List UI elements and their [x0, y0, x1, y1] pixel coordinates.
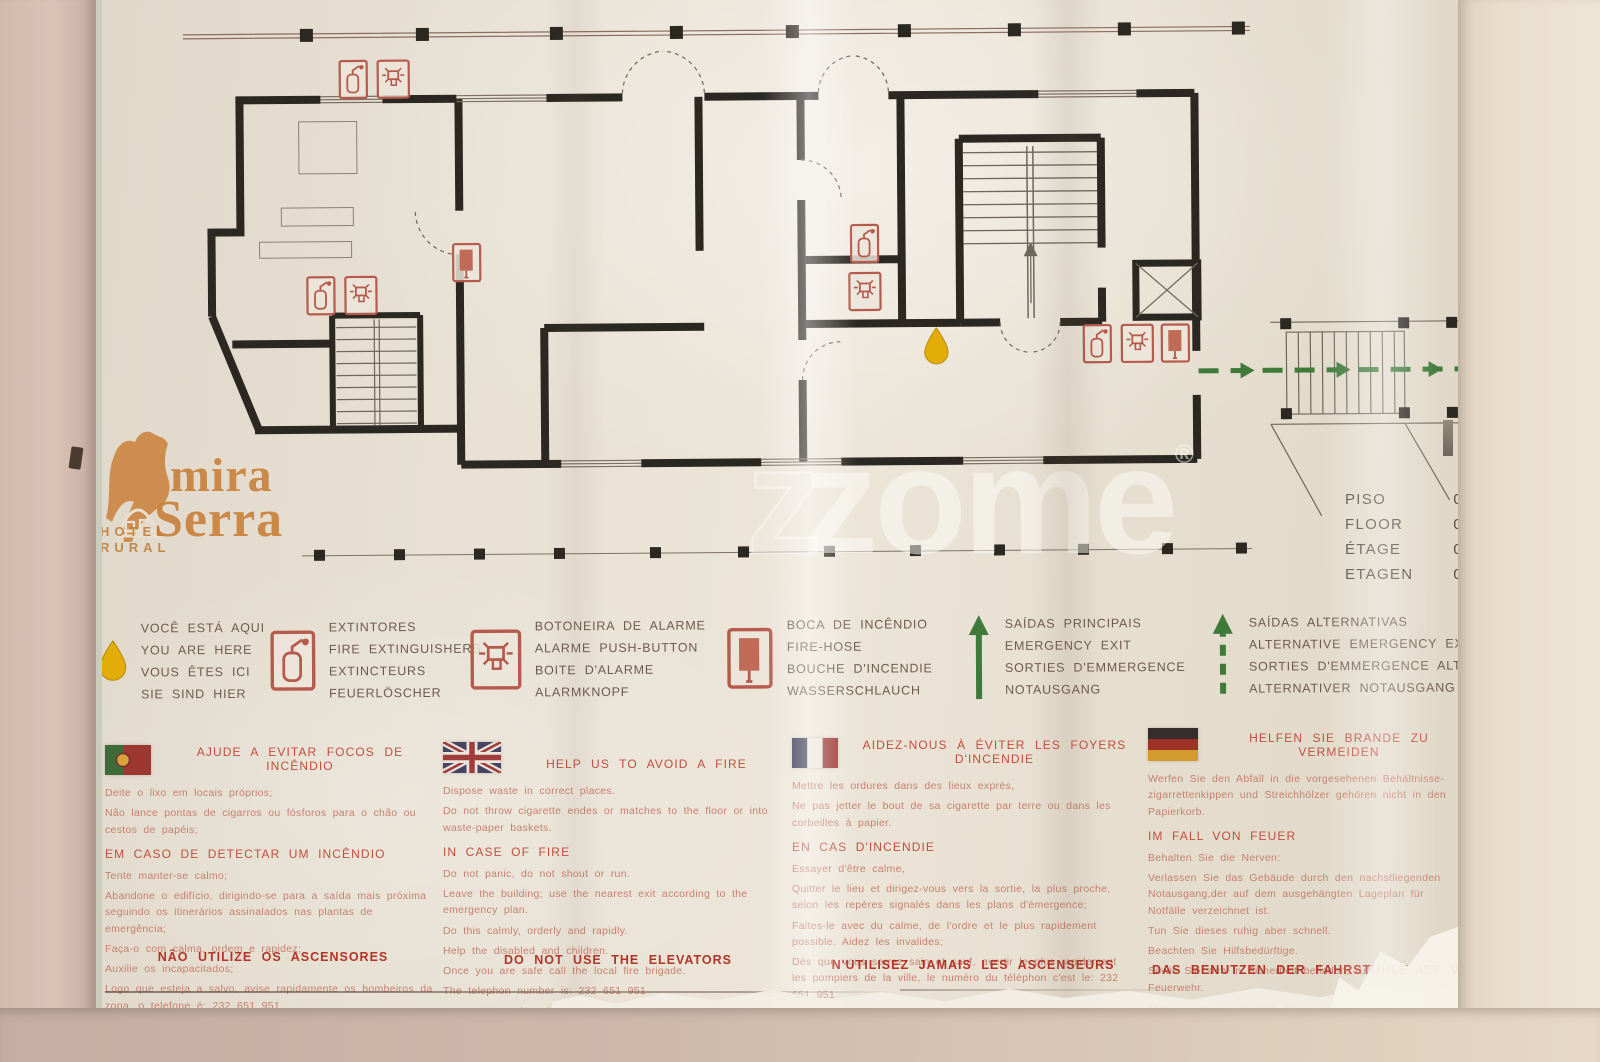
- elevator-box: [1136, 263, 1198, 317]
- fire-hose-icon: [726, 627, 774, 689]
- fire-hose-icon: [1162, 324, 1189, 361]
- hotel-logo: mira Serra HOTEL RURAL: [92, 428, 322, 568]
- paragraph: Faites-le avec du calme, de l'ordre et l…: [792, 918, 1137, 951]
- paragraph: Do this calmly, orderly and rapidly.: [443, 923, 778, 939]
- info-column-english: HELP US TO AVOID A FIRE Dispose waste in…: [443, 742, 778, 1040]
- paragraph: Leave the building; use the nearest exit…: [443, 886, 778, 919]
- paragraph: Do not panic, do not shout or run.: [443, 866, 778, 882]
- paragraph: Dispose waste in correct places.: [443, 783, 778, 799]
- zome-watermark: zzome®: [575, 425, 1365, 577]
- paragraph: Quitter le lieu et dirigez-vous vers la …: [792, 881, 1137, 914]
- wall-left: [0, 0, 102, 1062]
- fire-extinguisher-icon: [270, 630, 316, 692]
- paragraph: Abandone o edifício, dirigindo-se para a…: [105, 888, 435, 937]
- alarm-push-button-icon: [849, 273, 880, 310]
- column-subtitle: IN CASE OF FIRE: [443, 845, 778, 859]
- escape-route-arrows: [1199, 361, 1459, 379]
- logo-word-2: Serra: [154, 490, 283, 549]
- logo-sub-2: RURAL: [100, 540, 171, 555]
- logo-sub-1: HOTEL: [100, 524, 169, 539]
- fire-extinguisher-icon: [1084, 325, 1111, 362]
- footer-en: DO NOT USE THE ELEVATORS: [468, 953, 768, 967]
- column-subtitle: EN CAS D'INCENDIE: [792, 840, 1137, 854]
- paragraph: Essayer d'être calme,: [792, 861, 1137, 877]
- footer-fr: N'UTILISEZ JAMAIS LES ASCENSEURS: [808, 958, 1138, 972]
- paragraph: Do not throw cigarette endes or matches …: [443, 803, 778, 836]
- paragraph: Tente manter-se calmo;: [105, 868, 435, 884]
- fire-extinguisher-icon: [851, 225, 878, 262]
- portugal-flag: [105, 745, 151, 775]
- poster-bottom-border: [900, 989, 1200, 991]
- paragraph: Werfen Sie den Abfall in die vorgesehene…: [1148, 771, 1466, 820]
- paragraph: Deite o lixo em locais próprios;: [105, 785, 435, 801]
- windows: [320, 90, 1139, 468]
- fire-extinguisher-icon: [307, 277, 334, 314]
- uk-flag: [443, 742, 501, 773]
- paragraph: Tun Sie dieses ruhig aber schnell.: [1148, 923, 1466, 939]
- stairwell: [963, 146, 1098, 319]
- legend-extinguishers: EXTINTORES FIRE EXTINGUISHERS EXTINCTEUR…: [270, 616, 482, 705]
- paragraph: Mettre les ordures dans des lieux exprès…: [792, 778, 1137, 794]
- fire-hose-icon: [453, 244, 480, 281]
- alarm-push-button-icon: [345, 277, 376, 314]
- legend-fire-hose: BOCA DE INCÊNDIO FIRE-HOSE BOUCHE D'INCE…: [726, 613, 933, 702]
- paragraph: Behalten Sie die Nerven:: [1148, 850, 1466, 866]
- legend-main-exits: SAÍDAS PRINCIPAIS EMERGENCY EXIT SORTIES…: [966, 612, 1186, 703]
- wall-right: [1458, 0, 1600, 1062]
- you-are-here-marker: [925, 328, 949, 364]
- column-title: AJUDE A EVITAR FOCOS DE INCÊNDIO: [165, 745, 435, 775]
- legend-you-are-here: VOCÊ ESTÁ AQUI YOU ARE HERE VOUS ÊTES IC…: [98, 617, 266, 706]
- fire-extinguisher-icon: [340, 61, 367, 98]
- alarm-push-button-icon: [1122, 325, 1153, 362]
- wall-bottom: [0, 1008, 1600, 1062]
- frame-clip-right: [1443, 420, 1453, 456]
- alarm-push-button-icon: [470, 628, 522, 690]
- column-subtitle: EM CASO DE DETECTAR UM INCÊNDIO: [105, 847, 435, 861]
- column-title: AIDEZ-NOUS À ÉVITER LES FOYERS D'INCENDI…: [852, 738, 1137, 768]
- paragraph: Verlassen Sie das Gebäude durch den nach…: [1148, 870, 1466, 919]
- legend: VOCÊ ESTÁ AQUI YOU ARE HERE VOUS ÊTES IC…: [0, 610, 1600, 738]
- paragraph: Não lance pontas de cigarros ou fósforos…: [105, 805, 435, 838]
- alarm-push-button-icon: [378, 61, 409, 98]
- france-flag: [792, 738, 838, 768]
- column-subtitle: IM FALL VON FEUER: [1148, 829, 1466, 843]
- germany-flag: [1148, 728, 1198, 761]
- solid-green-arrow-icon: [966, 613, 992, 703]
- yellow-drop-icon: [98, 640, 128, 682]
- footer-pt: NÃO UTILIZE OS ASCENSORES: [128, 950, 418, 964]
- paragraph: Ne pas jetter le bout de sa cigarette pa…: [792, 798, 1137, 831]
- north-colonnade: [183, 21, 1250, 42]
- stair-bottom-left: [336, 319, 417, 426]
- column-title: HELFEN SIE BRANDE ZU VERMEIDEN: [1212, 731, 1466, 761]
- column-title: HELP US TO AVOID A FIRE: [515, 757, 778, 773]
- photo-of-evacuation-plan: { "watermark": { "outline_letter": "z", …: [0, 0, 1600, 1062]
- legend-alarm-button: BOTONEIRA DE ALARME ALARME PUSH-BUTTON B…: [470, 614, 706, 703]
- furniture-lines: [259, 121, 358, 258]
- dashed-green-arrow-icon: [1210, 612, 1236, 702]
